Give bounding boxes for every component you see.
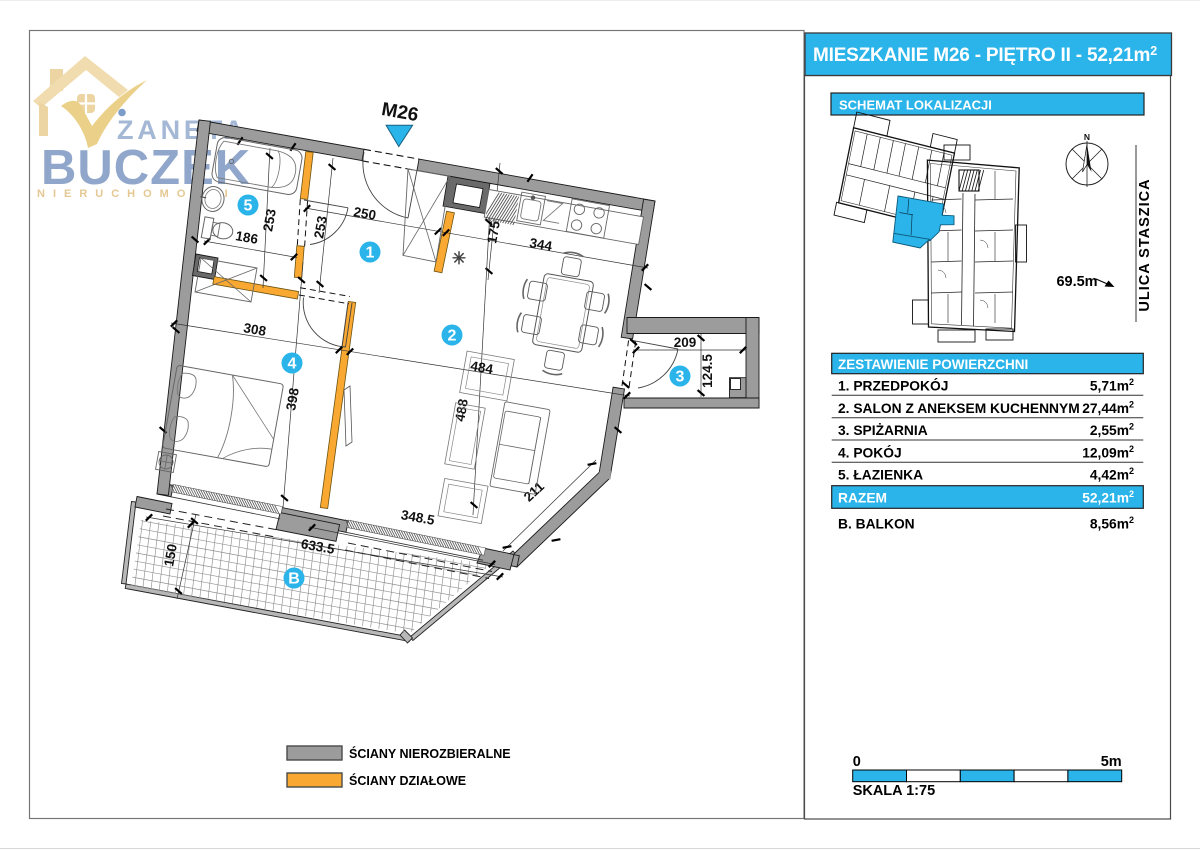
svg-text:RAZEM: RAZEM — [838, 490, 887, 505]
svg-text:✳: ✳ — [452, 249, 466, 268]
svg-text:SCHEMAT LOKALIZACJI: SCHEMAT LOKALIZACJI — [839, 98, 992, 113]
svg-text:2: 2 — [448, 328, 457, 345]
svg-text:5. ŁAZIENKA: 5. ŁAZIENKA — [838, 468, 923, 483]
svg-text:27,44m2: 27,44m2 — [1082, 399, 1134, 416]
svg-text:1: 1 — [366, 245, 375, 262]
svg-text:12,09m2: 12,09m2 — [1082, 444, 1134, 461]
svg-text:ŚCIANY DZIAŁOWE: ŚCIANY DZIAŁOWE — [349, 773, 466, 788]
svg-text:52,21m2: 52,21m2 — [1082, 489, 1134, 506]
svg-text:5m: 5m — [1101, 754, 1122, 770]
svg-text:B: B — [288, 571, 300, 588]
svg-text:2. SALON Z ANEKSEM KUCHENNYM: 2. SALON Z ANEKSEM KUCHENNYM — [838, 401, 1080, 416]
svg-text:2,55m2: 2,55m2 — [1090, 422, 1134, 439]
svg-text:N: N — [1084, 132, 1090, 142]
svg-text:ULICA STASZICA: ULICA STASZICA — [1137, 178, 1153, 311]
svg-text:8,56m2: 8,56m2 — [1090, 515, 1134, 532]
svg-text:4: 4 — [288, 356, 297, 373]
svg-text:5: 5 — [244, 198, 253, 215]
svg-text:1. PRZEDPOKÓJ: 1. PRZEDPOKÓJ — [838, 377, 948, 394]
svg-text:0: 0 — [853, 754, 861, 770]
svg-text:SKALA 1:75: SKALA 1:75 — [853, 783, 935, 799]
svg-text:ŚCIANY NIEROZBIERALNE: ŚCIANY NIEROZBIERALNE — [349, 746, 511, 761]
svg-text:124.5: 124.5 — [700, 354, 715, 388]
svg-text:3: 3 — [676, 369, 685, 386]
svg-text:ZESTAWIENIE POWIERZCHNI: ZESTAWIENIE POWIERZCHNI — [838, 357, 1028, 372]
svg-text:BUCZEK: BUCZEK — [41, 141, 251, 195]
svg-text:4,42m2: 4,42m2 — [1090, 466, 1134, 483]
svg-text:5,71m2: 5,71m2 — [1090, 377, 1134, 394]
svg-text:4. POKÓJ: 4. POKÓJ — [838, 443, 902, 460]
svg-text:3. SPIŻARNIA: 3. SPIŻARNIA — [838, 422, 928, 438]
svg-text:MIESZKANIE M26 - PIĘTRO II - 5: MIESZKANIE M26 - PIĘTRO II - 52,21m2 — [813, 44, 1157, 66]
svg-text:B. BALKON: B. BALKON — [838, 517, 915, 532]
svg-text:209: 209 — [674, 335, 697, 350]
svg-text:69.5m: 69.5m — [1056, 274, 1097, 290]
